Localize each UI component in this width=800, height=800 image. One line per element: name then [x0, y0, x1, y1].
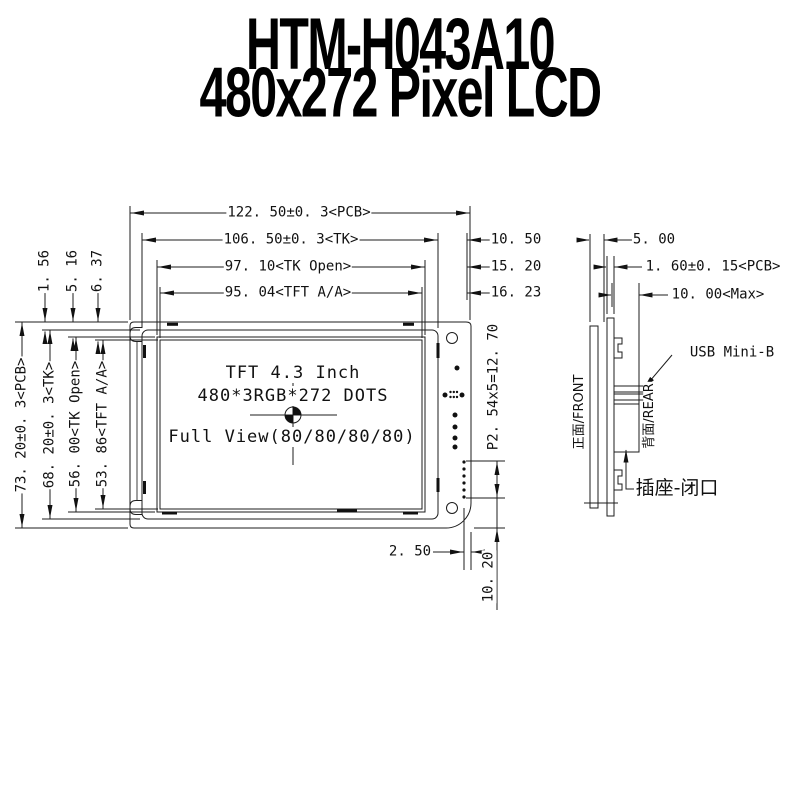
socket-label: 插座-闭口	[635, 479, 720, 499]
dim-bottom-offset: 2. 50	[388, 545, 432, 560]
usb-connector-label: USB Mini-B	[689, 346, 775, 361]
front-view-outline	[130, 322, 471, 528]
rear-face-label: 背面/REAR	[643, 382, 657, 450]
dim-pcb-height: 73. 20±0. 3<PCB>	[15, 357, 30, 494]
dim-tk-open-width: 97. 10<TK Open>	[224, 260, 352, 275]
dim-thickness: 5. 00	[632, 233, 676, 248]
dim-tk-width: 106. 50±0. 3<TK>	[223, 233, 360, 248]
front-view-holes-and-pins	[443, 333, 466, 514]
dim-max-depth: 10. 00<Max>	[671, 288, 766, 303]
screen-view-text: Full View(80/80/80/80)	[168, 427, 415, 447]
dim-tk-open-height: 56. 00<TK Open>	[69, 360, 84, 488]
dim-top-offset-3: 6. 37	[91, 249, 106, 293]
front-face-label: 正面/FRONT	[573, 374, 587, 451]
drawing-sheet: HTM-H043A10 480x272 Pixel LCD TFT 4.3 In…	[0, 0, 800, 800]
dim-pcb-width: 122. 50±0. 3<PCB>	[226, 206, 371, 221]
dim-right-offset-1: 10. 50	[490, 233, 543, 248]
dim-right-offset-2: 15. 20	[490, 260, 543, 275]
dim-top-offset-1: 1. 56	[38, 249, 53, 293]
dim-top-offset-2: 5. 16	[66, 249, 81, 293]
screen-resolution-text: 480*3RGB*272 DOTS	[198, 386, 389, 406]
dim-pin-pitch: P2. 54x5=12. 70	[487, 323, 502, 451]
screen-size-text: TFT 4.3 Inch	[226, 363, 361, 383]
dim-tk-height: 68. 20±0. 3<TK>	[43, 361, 58, 489]
page-title-resolution: 480x272 Pixel LCD	[200, 53, 601, 134]
dim-tft-aa-width: 95. 04<TFT A/A>	[224, 286, 352, 301]
dim-right-offset-3: 16. 23	[490, 286, 543, 301]
dim-bottom-right-offset: 10. 20	[482, 551, 497, 604]
dim-tft-aa-height: 53. 86<TFT A/A>	[96, 360, 111, 488]
dim-pcb-thickness: 1. 60±0. 15<PCB>	[645, 260, 782, 275]
